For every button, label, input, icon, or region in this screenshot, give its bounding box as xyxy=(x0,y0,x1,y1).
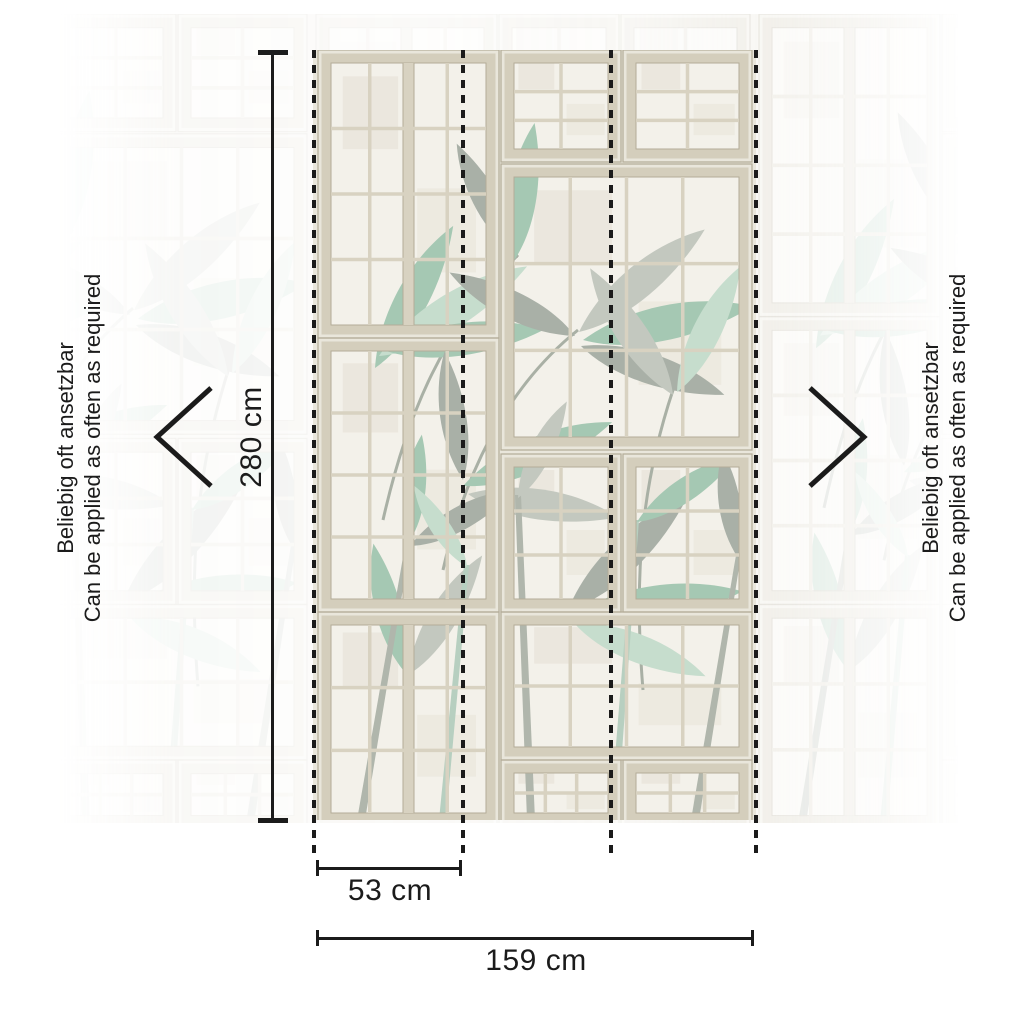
total-width-tick-left xyxy=(316,930,319,946)
panel-seam-line-3 xyxy=(609,50,613,858)
total-width-tick-right xyxy=(751,930,754,946)
side-note-left: Beliebig oft ansetzbar Can be applied as… xyxy=(52,274,106,623)
height-dimension-line xyxy=(271,52,274,822)
height-dimension-label: 280 cm xyxy=(235,386,269,487)
panel-width-dimension-line xyxy=(317,867,461,870)
side-note-right-de: Beliebig oft ansetzbar xyxy=(917,274,944,623)
height-dimension-tick-bottom xyxy=(258,818,288,823)
side-note-left-en: Can be applied as often as required xyxy=(79,274,106,623)
panel-width-tick-left xyxy=(316,860,319,876)
total-width-dimension-line xyxy=(317,937,754,940)
chevron-right-icon xyxy=(806,384,868,490)
side-note-right: Beliebig oft ansetzbar Can be applied as… xyxy=(917,274,971,623)
panel-seam-line-1 xyxy=(312,50,316,858)
panel-width-label: 53 cm xyxy=(348,874,432,908)
panel-seam-line-2 xyxy=(461,50,465,858)
total-width-label: 159 cm xyxy=(485,944,586,978)
chevron-left-icon xyxy=(153,384,215,490)
wallpaper-pattern xyxy=(313,50,756,820)
side-note-right-en: Can be applied as often as required xyxy=(944,274,971,623)
height-dimension-tick-top xyxy=(258,50,288,55)
wallpaper-dimension-diagram: 280 cm 53 cm 159 cm Beliebig oft ansetzb… xyxy=(0,0,1024,1024)
side-note-left-de: Beliebig oft ansetzbar xyxy=(52,274,79,623)
panel-width-tick-right xyxy=(459,860,462,876)
panel-seam-line-4 xyxy=(754,50,758,858)
